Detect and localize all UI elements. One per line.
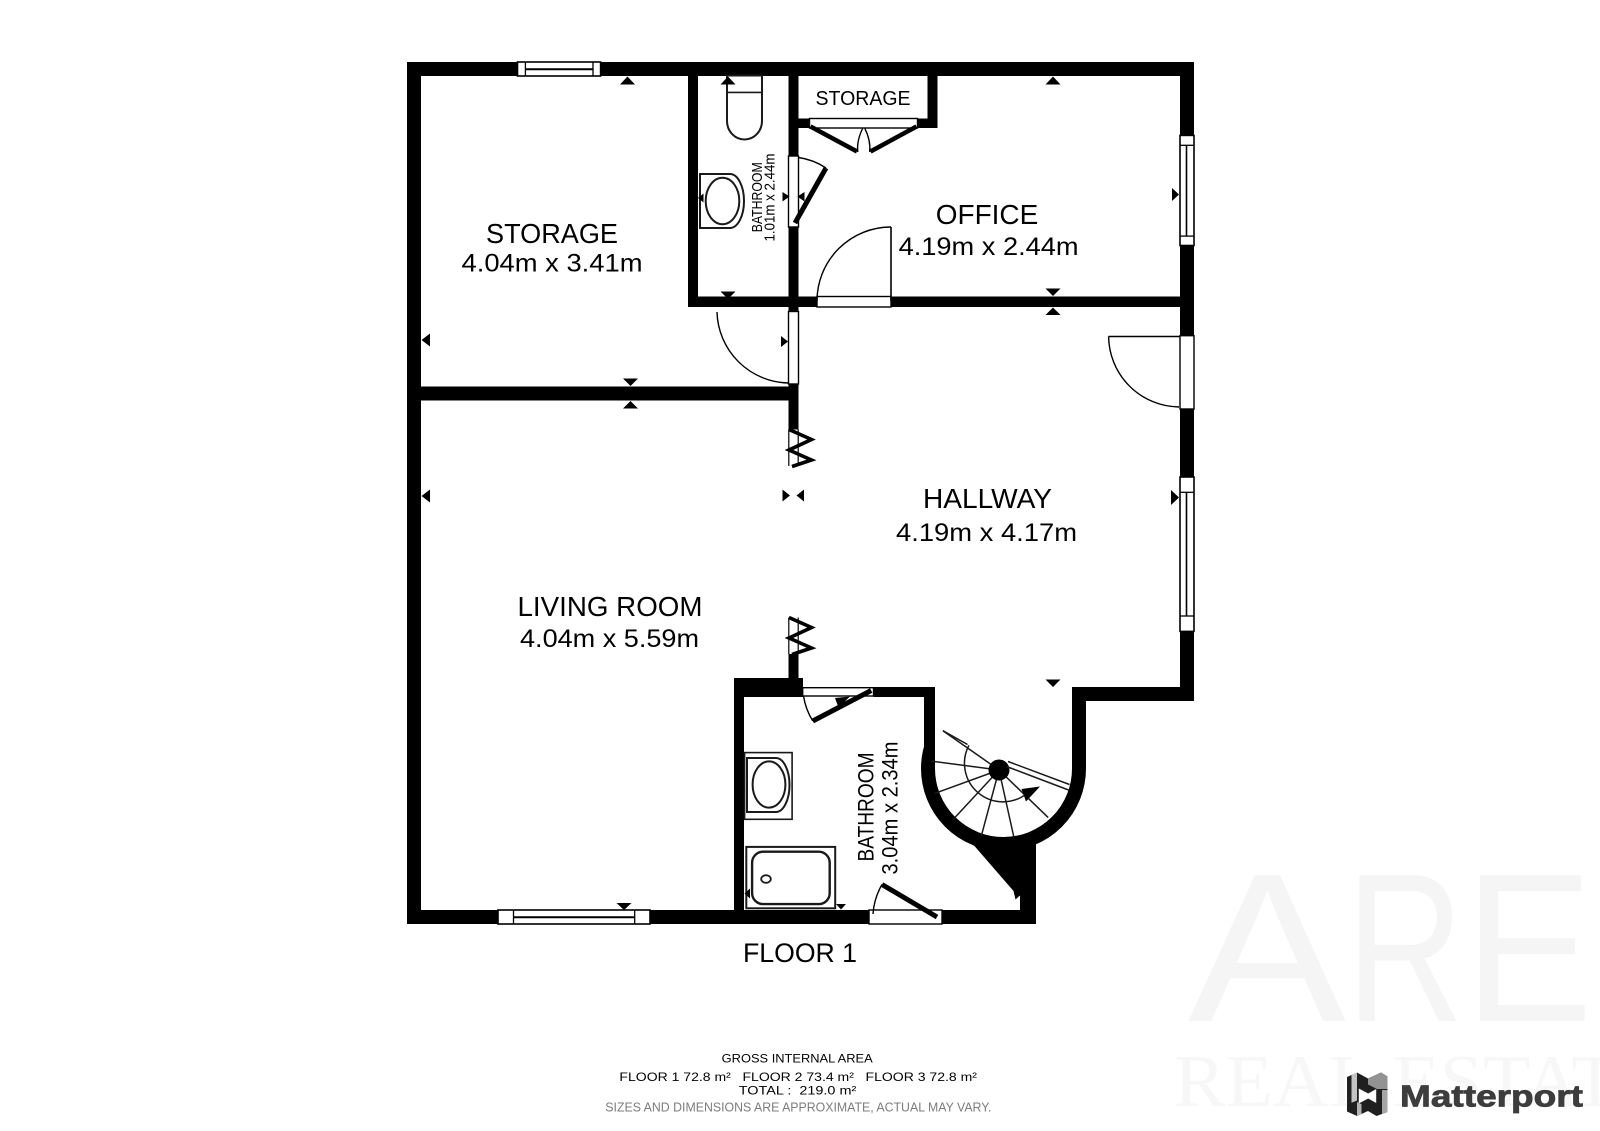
svg-text:3.04m x 2.34m: 3.04m x 2.34m [877,742,902,875]
svg-text:STORAGE: STORAGE [486,218,618,249]
svg-text:GROSS INTERNAL AREA: GROSS INTERNAL AREA [722,1054,873,1066]
svg-text:HALLWAY: HALLWAY [923,483,1052,514]
svg-text:FLOOR 1 72.8 m² FLOOR 2 73.4: FLOOR 1 72.8 m² FLOOR 2 73.4 m² FLOOR 3 … [619,1070,977,1084]
svg-text:LIVING ROOM: LIVING ROOM [518,591,703,622]
svg-text:4.19m x 4.17m: 4.19m x 4.17m [896,519,1077,547]
svg-text:BATHROOM: BATHROOM [854,753,879,862]
svg-text:TOTAL : 219.0 m²: TOTAL : 219.0 m² [739,1084,857,1098]
svg-text:1.01m x 2.44m: 1.01m x 2.44m [762,154,779,242]
svg-text:4.19m x 2.44m: 4.19m x 2.44m [899,233,1079,261]
svg-text:FLOOR 1: FLOOR 1 [743,938,857,968]
svg-text:STORAGE: STORAGE [816,87,911,110]
svg-text:OFFICE: OFFICE [936,199,1039,230]
svg-text:4.04m x 5.59m: 4.04m x 5.59m [520,625,699,653]
svg-text:Matterport: Matterport [1400,1079,1583,1114]
svg-text:A: A [1188,829,1346,1066]
svg-text:SIZES AND DIMENSIONS ARE APPRO: SIZES AND DIMENSIONS ARE APPROXIMATE, AC… [605,1100,991,1115]
svg-text:R: R [1346,829,1464,1066]
svg-text:4.04m x 3.41m: 4.04m x 3.41m [462,249,643,277]
svg-text:E: E [1464,829,1593,1066]
